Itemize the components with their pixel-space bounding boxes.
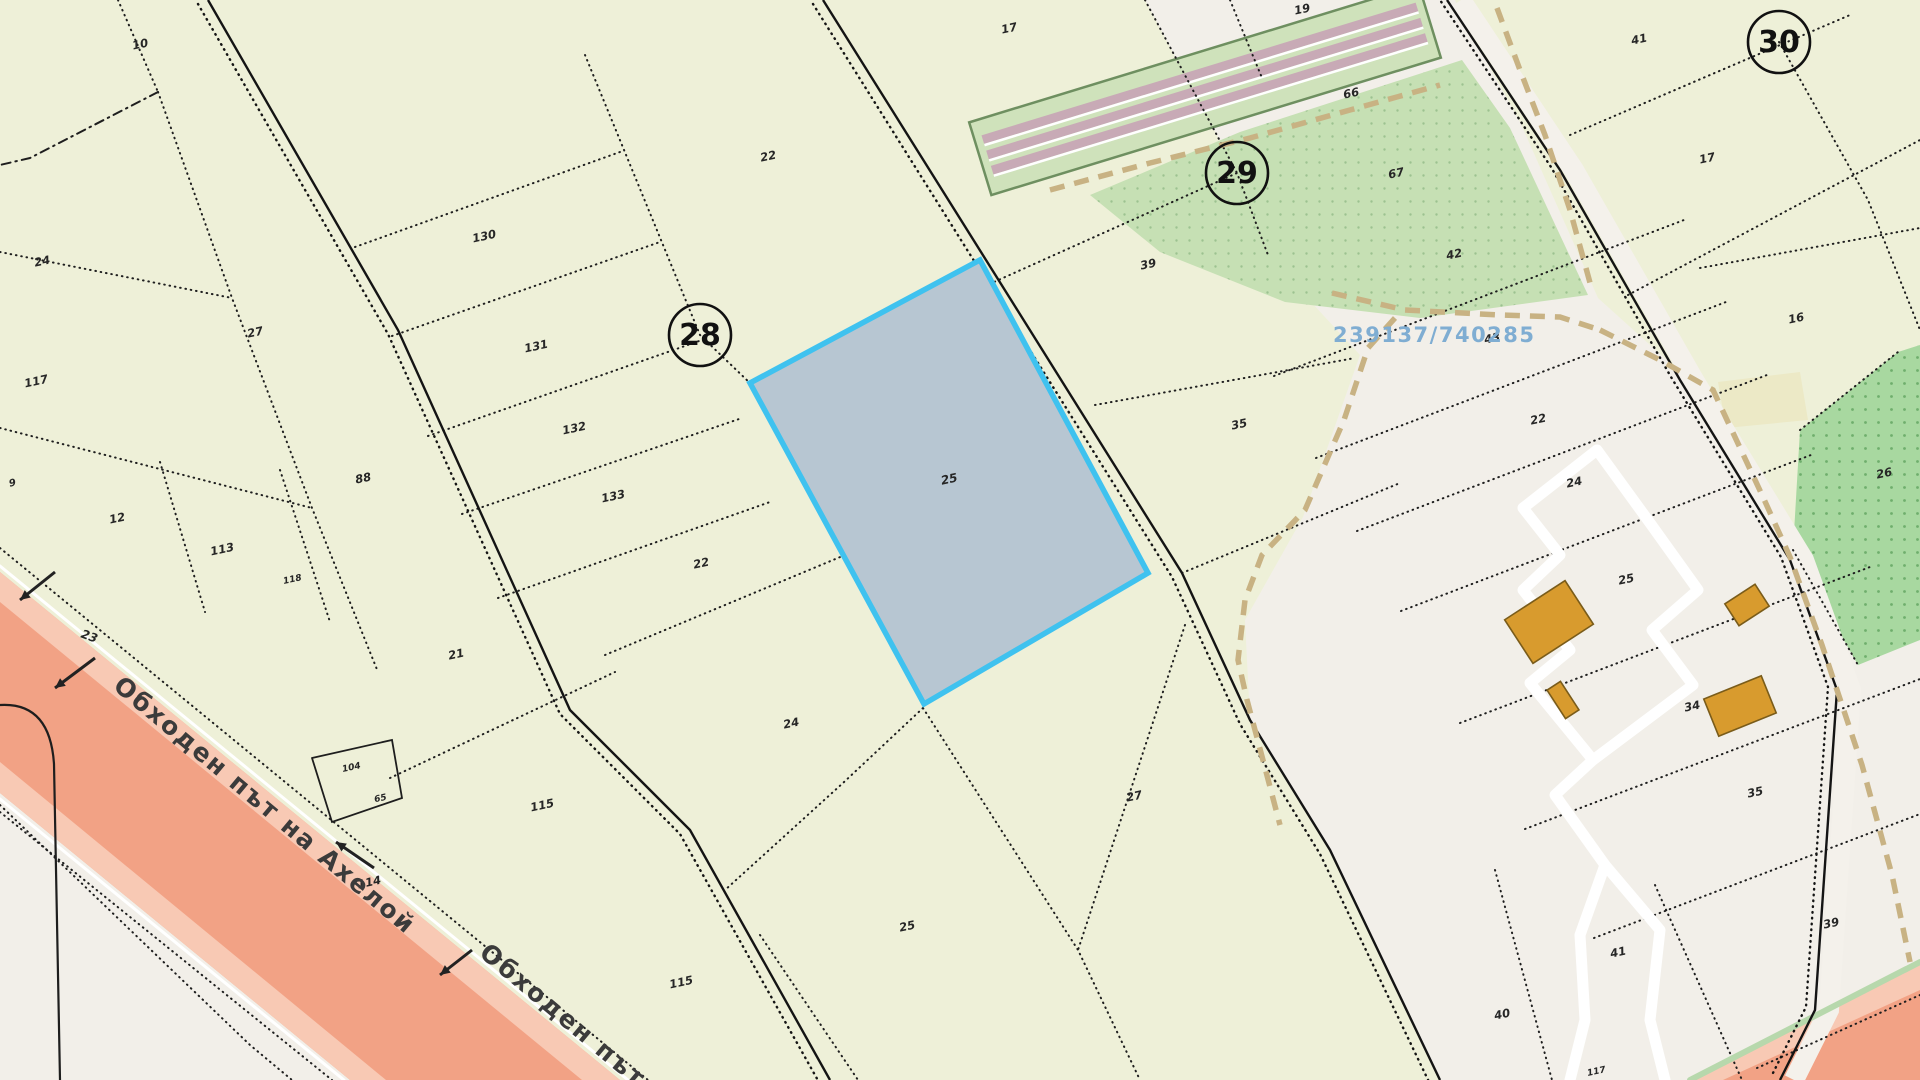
cadastral-map-stage: 2829301024271301311321338811791211311821… [0, 0, 1920, 1080]
block-circle-label-30: 30 [1758, 25, 1800, 60]
yellow-patch-small [1718, 372, 1808, 428]
cadastral-map: 2829301024271301311321338811791211311821… [0, 0, 1920, 1080]
block-circle-label-29: 29 [1216, 156, 1258, 191]
block-circle-label-28: 28 [679, 318, 721, 353]
reference-number: 239137/740285 [1333, 323, 1536, 347]
